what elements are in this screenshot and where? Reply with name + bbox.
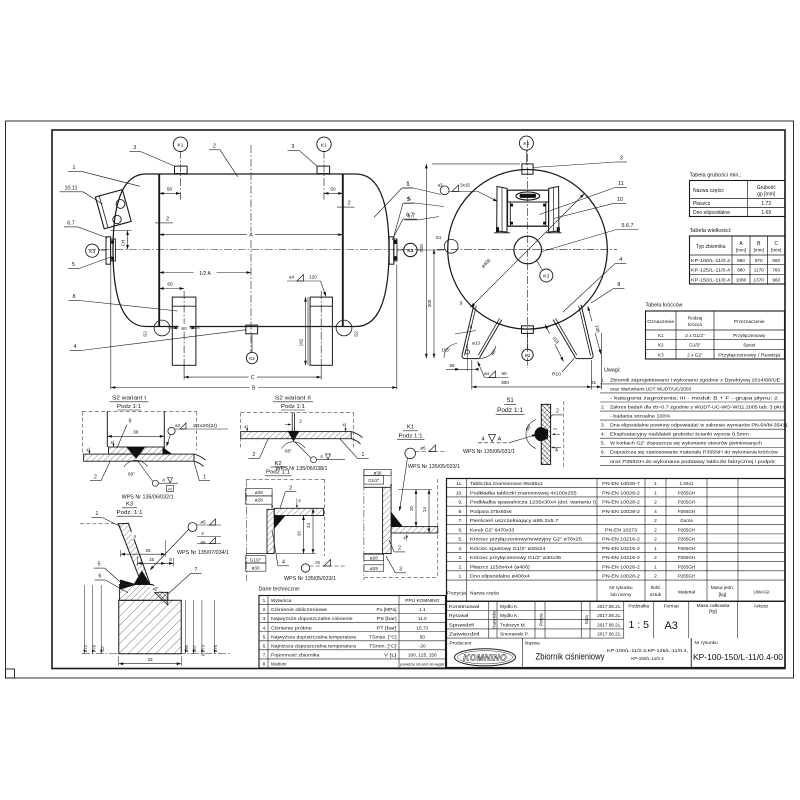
- svg-text:2: 2: [166, 216, 169, 222]
- svg-text:K1: K1: [523, 141, 529, 147]
- svg-text:S2 wariant I: S2 wariant I: [112, 396, 146, 402]
- svg-text:300: 300: [427, 299, 432, 307]
- svg-text:7.: 7.: [458, 518, 462, 524]
- svg-text:5.: 5.: [601, 441, 605, 447]
- svg-text:-20: -20: [419, 643, 426, 648]
- svg-text:8: 8: [73, 294, 76, 300]
- svg-text:Dna elipsoidalne powinny odpow: Dna elipsoidalne powinny odpowiadać w za…: [610, 423, 788, 429]
- svg-text:PN-EN 10216-2: PN-EN 10216-2: [602, 555, 640, 560]
- svg-text:Ciśnienie próbne: Ciśnienie próbne: [271, 625, 312, 630]
- svg-text:1: 1: [407, 182, 410, 188]
- svg-text:2: 2: [654, 574, 657, 580]
- svg-text:ø29: ø29: [255, 490, 263, 495]
- svg-text:Podpora 375x60x6: Podpora 375x60x6: [470, 509, 512, 515]
- svg-text:1.72: 1.72: [761, 201, 771, 207]
- svg-text:Nazwa części: Nazwa części: [470, 591, 499, 597]
- svg-text:C: C: [251, 375, 255, 381]
- svg-text:10.11: 10.11: [64, 185, 77, 191]
- svg-text:A: A: [498, 437, 502, 443]
- svg-text:P265GH: P265GH: [678, 555, 696, 560]
- svg-text:2: 2: [213, 143, 216, 149]
- svg-text:2: 2: [289, 485, 292, 491]
- svg-text:Masa jedn.: Masa jedn.: [711, 585, 734, 591]
- svg-text:Nr rysunku: Nr rysunku: [695, 640, 719, 646]
- svg-text:PN-EN 10028-2: PN-EN 10028-2: [602, 564, 640, 569]
- svg-text:1/2 A: 1/2 A: [199, 271, 211, 277]
- svg-text:4: 4: [201, 531, 204, 536]
- svg-text:Grubość: Grubość: [757, 185, 776, 191]
- svg-text:60: 60: [181, 326, 187, 332]
- svg-text:6.7: 6.7: [408, 213, 416, 219]
- svg-text:4.: 4.: [263, 625, 267, 630]
- svg-text:Podziałka: Podziałka: [628, 603, 649, 609]
- svg-text:6.: 6.: [458, 527, 462, 533]
- svg-text:KP-100/L-11/0.4: KP-100/L-11/0.4: [691, 258, 730, 263]
- svg-text:Nazwa części: Nazwa części: [693, 188, 724, 194]
- svg-text:60°: 60°: [128, 472, 135, 477]
- svg-text:11: 11: [618, 181, 624, 187]
- svg-text:8.: 8.: [263, 662, 267, 667]
- svg-text:K2: K2: [658, 343, 664, 348]
- svg-text:Dno elipsoidalne: Dno elipsoidalne: [693, 210, 730, 216]
- svg-text:Uwagi:: Uwagi:: [604, 368, 620, 374]
- svg-text:Podkładka spawalnicza 1235x30x: Podkładka spawalnicza 1235x30x4 (dot. wa…: [470, 500, 596, 506]
- svg-text:10: 10: [617, 197, 623, 203]
- svg-text:Dane techniczne:: Dane techniczne:: [259, 587, 301, 593]
- svg-text:PN-EN 10028-2: PN-EN 10028-2: [602, 490, 640, 495]
- svg-text:S1: S1: [506, 398, 514, 404]
- svg-text:P265GH: P265GH: [678, 527, 696, 532]
- svg-text:Ilość: Ilość: [651, 585, 661, 591]
- svg-text:Zbiornik ciśnieniowy: Zbiornik ciśnieniowy: [536, 652, 605, 662]
- svg-text:2: 2: [654, 500, 657, 506]
- svg-text:gp [mm]: gp [mm]: [757, 192, 776, 198]
- svg-text:4.: 4.: [601, 432, 605, 438]
- svg-text:S2: S2: [143, 331, 149, 337]
- svg-text:2: 2: [654, 518, 657, 524]
- svg-text:Guma: Guma: [680, 518, 693, 523]
- svg-text:CH: CH: [120, 240, 125, 246]
- svg-text:lub normy: lub normy: [610, 592, 632, 598]
- svg-text:Masa całkowita: Masa całkowita: [697, 603, 730, 609]
- svg-text:oraz Warunkami UDT WUDT/UC/200: oraz Warunkami UDT WUDT/UC/2003: [610, 386, 692, 392]
- svg-text:Rysował: Rysował: [449, 613, 469, 619]
- svg-text:K3: K3: [543, 274, 549, 280]
- svg-text:K1: K1: [407, 425, 414, 431]
- svg-text:50: 50: [420, 634, 426, 639]
- svg-text:1.4541: 1.4541: [679, 481, 693, 486]
- svg-text:11.: 11.: [456, 481, 462, 487]
- svg-text:Przeznaczenie: Przeznaczenie: [734, 319, 765, 324]
- svg-text:680: 680: [737, 258, 745, 263]
- svg-text:WPS Nr 135/06/032/1: WPS Nr 135/06/032/1: [122, 495, 174, 501]
- svg-text:Najwyższa dopuszczalna tempera: Najwyższa dopuszczalna temperatura: [271, 634, 356, 639]
- svg-text:Materiał: Materiał: [678, 590, 696, 596]
- svg-text:6.7: 6.7: [67, 220, 75, 226]
- svg-text:9.: 9.: [458, 500, 462, 506]
- svg-text:520: 520: [419, 244, 424, 252]
- svg-text:A3: A3: [664, 620, 677, 632]
- svg-text:1: 1: [95, 511, 98, 517]
- svg-text:3: 3: [292, 144, 295, 150]
- svg-text:TSmin. [°C]: TSmin. [°C]: [369, 643, 397, 648]
- svg-text:Podz 1:1: Podz 1:1: [281, 404, 305, 410]
- svg-text:24: 24: [422, 507, 427, 512]
- svg-text:ø28: ø28: [370, 555, 378, 560]
- svg-text:Płaszcz: Płaszcz: [693, 201, 711, 207]
- svg-text:WPS Nr 135/05/033/1: WPS Nr 135/05/033/1: [408, 464, 460, 470]
- svg-text:5.6.7: 5.6.7: [622, 223, 634, 229]
- svg-text:ø67: ø67: [192, 644, 197, 652]
- svg-text:Zatwierdził: Zatwierdził: [449, 632, 480, 638]
- svg-text:2.: 2.: [601, 404, 605, 410]
- svg-text:4: 4: [74, 344, 77, 350]
- svg-text:Nr rysunku: Nr rysunku: [609, 585, 633, 591]
- svg-text:4.: 4.: [458, 546, 462, 552]
- svg-text:WPS Nr 135/06/031/1: WPS Nr 135/06/031/1: [463, 449, 515, 455]
- svg-text:Zbiornik zaprojektowano i wyko: Zbiornik zaprojektowano i wykonano zgodn…: [610, 377, 780, 383]
- svg-text:50: 50: [330, 187, 336, 193]
- svg-text:oraz P355GH do wykonania podst: oraz P355GH do wykonania podstawy tablic…: [610, 459, 776, 465]
- svg-text:ø28: ø28: [255, 498, 263, 503]
- svg-text:1: 1: [654, 490, 657, 496]
- svg-text:6.: 6.: [601, 450, 605, 456]
- svg-text:4: 4: [481, 437, 484, 443]
- svg-text:KP-100/L-11/0.4,KP-125/L-11/0.: KP-100/L-11/0.4,KP-125/L-11/0.4,: [607, 648, 688, 653]
- svg-text:Pozycja: Pozycja: [447, 591, 467, 596]
- svg-text:powietrze lub azot lub węgiel: powietrze lub azot lub węgiel: [400, 663, 444, 667]
- svg-text:WPS Nr 135/05/033/1: WPS Nr 135/05/033/1: [284, 576, 336, 582]
- svg-text:Podpis: Podpis: [539, 613, 544, 626]
- svg-text:30: 30: [133, 430, 139, 436]
- svg-text:Nazwa: Nazwa: [525, 641, 540, 647]
- svg-text:15: 15: [149, 557, 155, 562]
- svg-text:2: 2: [299, 418, 302, 423]
- svg-text:V [L]: V [L]: [384, 652, 397, 657]
- svg-text:1170: 1170: [754, 268, 764, 273]
- svg-text:K2: K2: [249, 356, 255, 361]
- svg-text:K1: K1: [658, 333, 664, 338]
- svg-text:1.1: 1.1: [419, 607, 426, 612]
- svg-text:3.: 3.: [263, 616, 267, 621]
- svg-text:Podkładka tabliczki znamionowe: Podkładka tabliczki znamionowej 4x100x25…: [470, 490, 577, 496]
- svg-text:ø5: ø5: [200, 519, 206, 524]
- svg-text:20: 20: [297, 531, 302, 536]
- svg-text:Rodzaj: Rodzaj: [688, 316, 703, 321]
- svg-text:2 x G2": 2 x G2": [687, 352, 703, 357]
- svg-text:6.: 6.: [263, 643, 267, 648]
- svg-text:Przyłączeniowy / Rewizja: Przyłączeniowy / Rewizja: [718, 352, 780, 357]
- svg-text:a4: a4: [289, 275, 295, 280]
- svg-text:Tabela króćców: Tabela króćców: [646, 303, 684, 309]
- svg-text:TSmax. [°C]: TSmax. [°C]: [369, 634, 397, 639]
- svg-text:Nazwisko: Nazwisko: [492, 610, 497, 629]
- svg-text:Podz 1:1: Podz 1:1: [399, 433, 423, 439]
- svg-text:[kg]: [kg]: [709, 609, 717, 615]
- svg-text:UWAGI: UWAGI: [753, 590, 769, 596]
- svg-text:Pierścień uszczelniający ø85.2: Pierścień uszczelniający ø85.2x5.7: [470, 518, 559, 524]
- svg-text:Oznaczenie: Oznaczenie: [647, 319, 674, 324]
- svg-text:a3: a3: [437, 183, 443, 188]
- svg-text:a3: a3: [175, 423, 180, 428]
- svg-text:2.: 2.: [458, 564, 462, 570]
- svg-text:Płaszcz 1250x4x4 (ø406): Płaszcz 1250x4x4 (ø406): [470, 564, 530, 570]
- svg-text:5.: 5.: [458, 537, 462, 543]
- svg-text:PN-EN 10028-7: PN-EN 10028-7: [602, 481, 640, 486]
- svg-text:[mm]: [mm]: [771, 248, 781, 253]
- svg-text:15.73: 15.73: [416, 625, 428, 630]
- svg-text:Dno elipsoidalne ø406x4: Dno elipsoidalne ø406x4: [470, 574, 530, 580]
- svg-text:Podz 1:1: Podz 1:1: [266, 470, 290, 476]
- svg-text:KP-100-150/L-11/0.4-00: KP-100-150/L-11/0.4-00: [693, 652, 783, 662]
- svg-text:Arkusz: Arkusz: [754, 603, 769, 609]
- svg-text:9: 9: [128, 418, 131, 424]
- svg-text:a4: a4: [484, 371, 490, 376]
- svg-text:Wytwórca: Wytwórca: [271, 598, 292, 603]
- svg-text:3: 3: [399, 566, 402, 572]
- svg-text:8: 8: [169, 557, 172, 562]
- svg-text:- badania wizualne 100%: - badania wizualne 100%: [610, 414, 671, 420]
- svg-text:Tabela grubości min.:: Tabela grubości min.:: [690, 173, 742, 179]
- svg-text:KP-125/L-11/0.4: KP-125/L-11/0.4: [691, 268, 730, 273]
- svg-text:560: 560: [772, 258, 780, 263]
- svg-text:8: 8: [617, 282, 620, 288]
- svg-text:P265GH: P265GH: [678, 500, 696, 505]
- svg-text:PN-EN 10028-2: PN-EN 10028-2: [602, 574, 640, 579]
- svg-text:Podz 1:1: Podz 1:1: [497, 408, 524, 414]
- svg-text:31: 31: [591, 380, 597, 386]
- svg-text:25: 25: [145, 548, 151, 553]
- svg-text:2017.08.21.: 2017.08.21.: [597, 632, 621, 637]
- svg-text:Pojemność zbiornika: Pojemność zbiornika: [271, 652, 320, 657]
- svg-text:1: 1: [654, 564, 657, 570]
- svg-text:2017.08.21.: 2017.08.21.: [597, 604, 621, 609]
- svg-text:105°: 105°: [441, 348, 450, 353]
- svg-text:Trukszyn M.: Trukszyn M.: [500, 622, 526, 628]
- svg-text:ø76: ø76: [213, 644, 218, 652]
- svg-text:6-ø73: 6-ø73: [201, 644, 206, 656]
- svg-text:ø13: ø13: [472, 341, 480, 346]
- svg-text:970: 970: [755, 258, 763, 263]
- svg-text:Spust: Spust: [743, 343, 756, 348]
- svg-text:2: 2: [654, 527, 657, 533]
- svg-text:S1: S1: [436, 235, 442, 241]
- svg-text:Smorawski P.: Smorawski P.: [500, 632, 529, 638]
- svg-text:2: 2: [654, 555, 657, 561]
- svg-text:Mydło K.: Mydło K.: [500, 604, 519, 610]
- svg-text:Sprawdził: Sprawdził: [449, 622, 475, 628]
- svg-text:[mm]: [mm]: [736, 248, 746, 253]
- svg-text:5: 5: [72, 262, 75, 268]
- svg-text:Konstruował: Konstruował: [449, 604, 480, 610]
- svg-text:Przyłączeniowy: Przyłączeniowy: [733, 333, 766, 338]
- svg-text:3: 3: [620, 156, 623, 162]
- svg-text:ø5: ø5: [420, 446, 426, 451]
- svg-text:1: 1: [654, 481, 657, 487]
- svg-text:S2: S2: [354, 331, 360, 337]
- svg-text:760: 760: [772, 268, 780, 273]
- svg-text:M: M: [168, 486, 171, 491]
- svg-text:ø5: ø5: [200, 540, 206, 545]
- svg-text:24x20(2I): 24x20(2I): [193, 423, 218, 428]
- svg-text:24: 24: [306, 523, 311, 528]
- svg-text:PN-EN 10028-2: PN-EN 10028-2: [602, 500, 640, 505]
- svg-text:4: 4: [619, 257, 622, 263]
- svg-text:1: 1: [654, 546, 657, 552]
- svg-text:G2": G2": [100, 644, 105, 652]
- svg-text:Korek G2" 6470x33: Korek G2" 6470x33: [470, 527, 515, 533]
- svg-text:króćca: króćca: [688, 322, 702, 327]
- svg-text:880: 880: [737, 268, 745, 273]
- svg-text:7: 7: [195, 567, 198, 573]
- svg-text:2: 2: [252, 452, 255, 458]
- svg-text:1080: 1080: [736, 277, 747, 282]
- svg-text:56: 56: [449, 363, 455, 368]
- svg-text:10.: 10.: [456, 490, 463, 496]
- svg-text:P265GH: P265GH: [678, 509, 696, 514]
- svg-text:Tabela wielkości:: Tabela wielkości:: [690, 228, 732, 234]
- svg-text:60: 60: [167, 282, 173, 288]
- svg-text:2: 2: [348, 201, 351, 207]
- svg-text:Zakres badań dla zb=0.7 zgodni: Zakres badań dla zb=0.7 zgodnie z WUDT-U…: [610, 404, 786, 410]
- svg-text:G1/2": G1/2": [689, 343, 701, 348]
- svg-text:PN-EN 10273: PN-EN 10273: [605, 527, 637, 532]
- svg-text:K3: K3: [658, 352, 664, 357]
- svg-text:W korkach G2" dopuszcza się wy: W korkach G2" dopuszcza się wykonanie ot…: [610, 441, 762, 447]
- svg-text:[kg]: [kg]: [719, 592, 727, 598]
- svg-text:K1: K1: [321, 142, 327, 148]
- svg-text:Po [MPa]: Po [MPa]: [377, 607, 397, 612]
- svg-text:Eksploatacyjny naddatek gruboś: Eksploatacyjny naddatek grubości ścianki…: [610, 432, 749, 438]
- svg-text:4: 4: [133, 534, 136, 539]
- svg-text:1: 1: [362, 452, 365, 458]
- svg-text:K2: K2: [525, 353, 531, 358]
- svg-text:2.: 2.: [263, 607, 267, 612]
- svg-text:4: 4: [654, 509, 657, 515]
- svg-text:1 : 5: 1 : 5: [629, 619, 650, 631]
- svg-text:8.: 8.: [458, 509, 462, 515]
- svg-text:50: 50: [167, 187, 173, 193]
- svg-text:Najwyższe dopuszczalne ciśnien: Najwyższe dopuszczalne ciśnienie: [271, 616, 353, 621]
- svg-text:K3: K3: [126, 502, 133, 508]
- svg-text:Data: Data: [584, 615, 589, 625]
- svg-text:Podz 1:1: Podz 1:1: [117, 404, 141, 410]
- svg-text:Tabliczka znamionowa 95x65x1: Tabliczka znamionowa 95x65x1: [470, 481, 543, 487]
- svg-text:300: 300: [501, 380, 509, 386]
- svg-text:ø30: ø30: [374, 470, 382, 475]
- svg-text:sztuk: sztuk: [650, 592, 662, 598]
- svg-text:Format: Format: [664, 603, 680, 609]
- svg-text:P265GH: P265GH: [678, 490, 696, 495]
- svg-text:K2: K2: [274, 461, 281, 467]
- svg-text:182: 182: [298, 338, 303, 346]
- svg-text:5.: 5.: [263, 634, 267, 639]
- svg-text:45°: 45°: [153, 587, 160, 592]
- svg-text:R10: R10: [552, 372, 561, 378]
- svg-text:PS [bar]: PS [bar]: [377, 616, 397, 621]
- svg-text:3: 3: [133, 145, 136, 151]
- svg-text:Medium: Medium: [271, 662, 286, 667]
- svg-text:ø56: ø56: [184, 644, 189, 652]
- svg-text:KP-150/L-11/0.4: KP-150/L-11/0.4: [631, 656, 664, 661]
- svg-text:2: 2: [556, 409, 559, 415]
- svg-text:60: 60: [501, 371, 507, 376]
- svg-text:4: 4: [162, 477, 165, 482]
- svg-text:2: 2: [398, 546, 401, 552]
- svg-text:- kategoria zagrożenia: III: - kategoria zagrożenia: III - moduł: B +…: [610, 395, 778, 401]
- svg-text:3x15: 3x15: [460, 183, 470, 188]
- svg-text:2 x G1/2": 2 x G1/2": [685, 333, 705, 338]
- svg-text:Mydło K.: Mydło K.: [500, 613, 519, 619]
- svg-text:Ciśnienie obliczeniowe: Ciśnienie obliczeniowe: [271, 607, 328, 612]
- svg-text:WPS Nr 135/07/034/1: WPS Nr 135/07/034/1: [177, 550, 229, 556]
- svg-text:S2 wariant II: S2 wariant II: [275, 396, 311, 402]
- svg-text:K3: K3: [407, 248, 413, 254]
- svg-text:4: 4: [555, 448, 558, 454]
- svg-text:P265GH: P265GH: [678, 537, 696, 542]
- svg-text:5: 5: [408, 197, 411, 203]
- svg-text:3.: 3.: [458, 555, 462, 561]
- svg-text:33: 33: [147, 657, 153, 662]
- svg-text:1.69: 1.69: [761, 210, 771, 216]
- svg-text:1: 1: [203, 474, 206, 480]
- svg-text:11.0: 11.0: [418, 616, 427, 621]
- svg-text:ø72: ø72: [83, 644, 88, 652]
- svg-text:PN-EN 10028-2: PN-EN 10028-2: [602, 509, 640, 514]
- svg-text:Dopuszcza się zastosowanie mat: Dopuszcza się zastosowanie materiału P35…: [610, 450, 778, 456]
- svg-text:960: 960: [772, 277, 780, 282]
- svg-text:PN-EN 10216-2: PN-EN 10216-2: [602, 537, 640, 542]
- svg-text:C: C: [774, 241, 778, 247]
- svg-text:PT [bar]: PT [bar]: [377, 625, 397, 630]
- svg-text:ø78: ø78: [91, 644, 96, 652]
- svg-text:Króciec przyłączeniowy G1/2" ø: Króciec przyłączeniowy G1/2" ø30x35: [470, 555, 561, 561]
- svg-text:4: 4: [282, 559, 285, 565]
- svg-text:2: 2: [94, 474, 97, 480]
- svg-text:K1: K1: [178, 142, 184, 148]
- svg-text:1: 1: [73, 165, 76, 171]
- svg-text:1.: 1.: [458, 574, 462, 580]
- svg-text:c5: c5: [315, 560, 320, 565]
- svg-text:5: 5: [98, 562, 101, 568]
- svg-text:ø29: ø29: [370, 566, 378, 571]
- svg-text:6: 6: [470, 324, 473, 330]
- svg-text:4: 4: [320, 454, 323, 459]
- svg-text:2017.08.21.: 2017.08.21.: [597, 613, 621, 618]
- svg-text:P265GH: P265GH: [678, 564, 696, 569]
- svg-text:[mm]: [mm]: [754, 248, 764, 253]
- svg-text:Typ zbiornika: Typ zbiornika: [696, 244, 726, 250]
- svg-text:1370: 1370: [754, 277, 765, 282]
- svg-text:G1/2": G1/2": [368, 478, 380, 483]
- svg-text:K3: K3: [89, 249, 95, 255]
- svg-text:P265GH: P265GH: [678, 546, 696, 551]
- svg-text:2017.08.21.: 2017.08.21.: [597, 622, 621, 627]
- svg-text:Najniższa dopuszczalna tempera: Najniższa dopuszczalna temperatura: [271, 643, 356, 648]
- svg-text:PN-EN 10216-2: PN-EN 10216-2: [602, 546, 640, 551]
- svg-text:P265GH: P265GH: [678, 574, 696, 579]
- svg-text:Króciec przyłączeniowy/rewizyj: Króciec przyłączeniowy/rewizyjny G2" ø76…: [470, 537, 582, 543]
- svg-text:6: 6: [98, 574, 101, 580]
- svg-text:20: 20: [409, 506, 414, 511]
- svg-text:Podz. 1:1: Podz. 1:1: [117, 510, 143, 516]
- svg-text:KP-150/L-11/0.4: KP-150/L-11/0.4: [691, 277, 730, 282]
- svg-text:3.: 3.: [601, 423, 605, 429]
- svg-text:PPU KOMNINO: PPU KOMNINO: [405, 598, 439, 603]
- svg-text:7.: 7.: [263, 652, 267, 657]
- svg-text:KOMNINO: KOMNINO: [463, 652, 507, 662]
- svg-text:G1/2": G1/2": [250, 557, 262, 562]
